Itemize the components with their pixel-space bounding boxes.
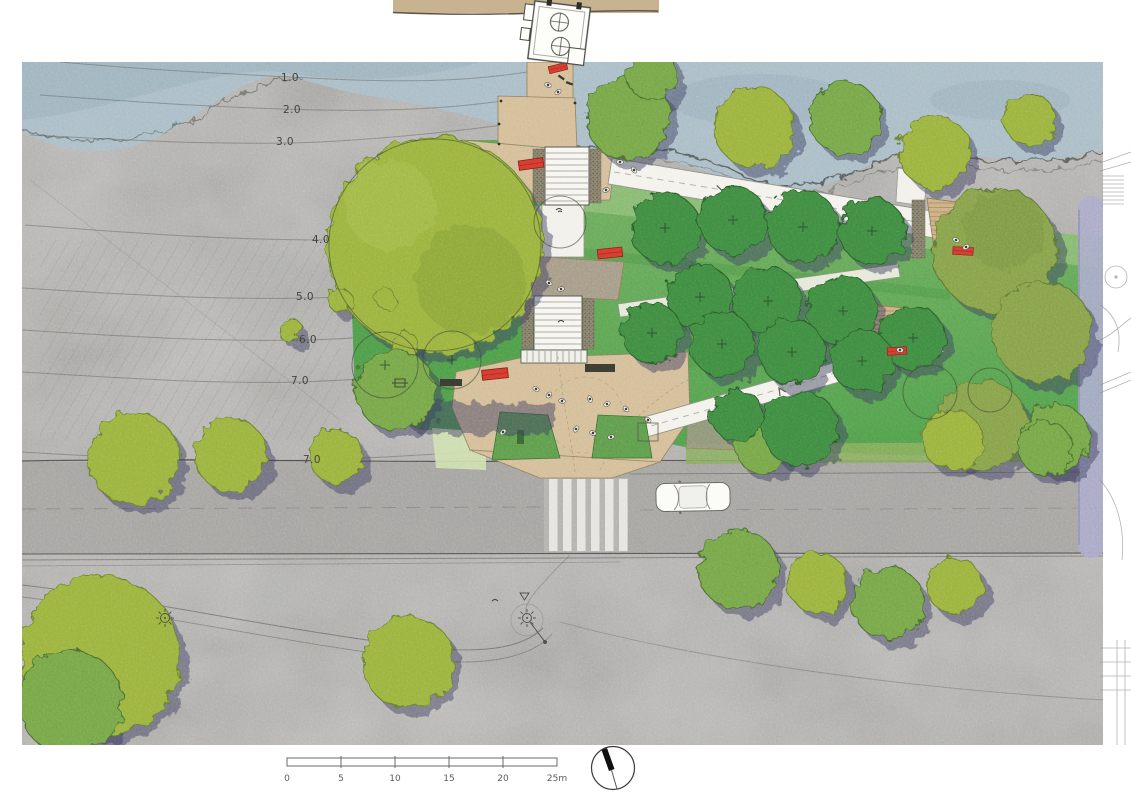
scale-bar: 0 5 10 15 20 25m [284, 756, 567, 784]
contour-label: 3.0 [276, 136, 294, 148]
north-arrow-icon [592, 747, 635, 790]
site-plan-canvas: 1.0 2.0 3.0 4.0 5.0 6.0 7.0 7.0 [0, 0, 1131, 800]
scale-tick-label: 5 [338, 774, 344, 784]
plan-area: 1.0 2.0 3.0 4.0 5.0 6.0 7.0 7.0 [18, 48, 1105, 763]
grain-overlay [22, 62, 1103, 745]
scale-tick-label: 25m [547, 774, 567, 784]
scale-tick-label: 10 [389, 774, 401, 784]
pier-structure [518, 0, 591, 65]
site-plan-sheet: 1.0 2.0 3.0 4.0 5.0 6.0 7.0 7.0 [0, 0, 1131, 800]
contour-label: 7.0 [291, 375, 309, 387]
scale-tick-label: 20 [497, 774, 509, 784]
contour-label: 4.0 [312, 234, 330, 246]
contour-label: 7.0 [303, 454, 321, 466]
scale-tick-label: 0 [284, 774, 290, 784]
contour-label: 6.0 [299, 334, 317, 346]
scale-tick-label: 15 [443, 774, 454, 784]
contour-label: 2.0 [283, 104, 301, 116]
contour-label: 5.0 [296, 291, 314, 303]
contour-label: 1.0 [281, 72, 299, 84]
cad-linework [1100, 152, 1131, 745]
